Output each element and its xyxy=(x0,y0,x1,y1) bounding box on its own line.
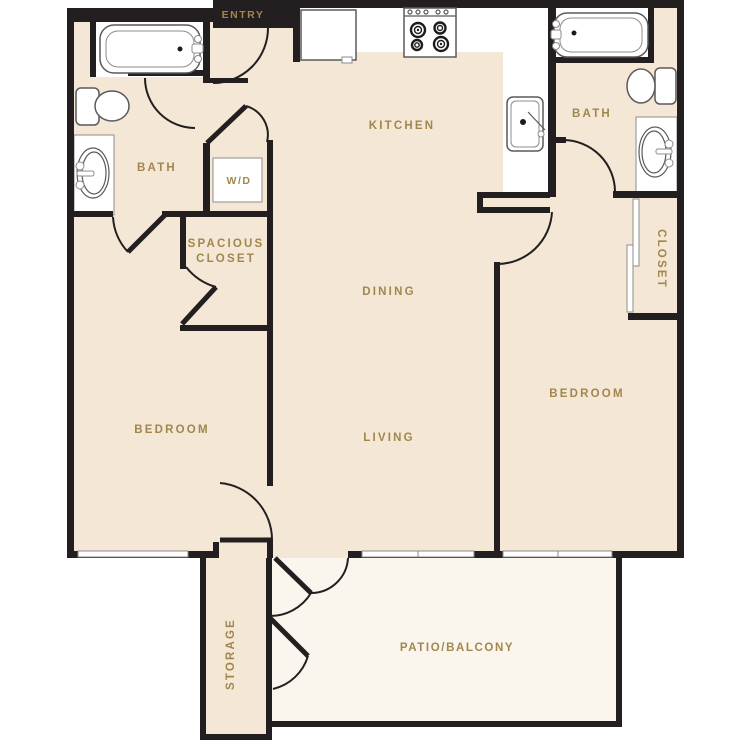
floor-plan: ENTRY KITCHEN BATH BATH W/D SPACIOUS CLO… xyxy=(0,0,750,750)
window xyxy=(78,551,188,557)
kitchen-sink-icon xyxy=(507,97,545,151)
fridge-icon xyxy=(301,10,356,60)
room-label-closet-right: CLOSET xyxy=(655,229,667,289)
fridge-handle xyxy=(342,57,352,63)
sliding-door-panel xyxy=(633,199,639,266)
room-label-bedroom-right: BEDROOM xyxy=(549,388,624,400)
bathtub-icon-left xyxy=(100,25,203,73)
room-label-bath-left: BATH xyxy=(137,162,177,174)
room-label-storage: STORAGE xyxy=(225,618,237,690)
room-label-bedroom-left: BEDROOM xyxy=(134,424,209,436)
room-label-spacious-closet-line2: CLOSET xyxy=(196,253,256,265)
room-label-spacious-closet-line1: SPACIOUS xyxy=(188,238,265,250)
room-label-dining: DINING xyxy=(362,286,415,298)
room-label-entry: ENTRY xyxy=(222,9,265,21)
bathtub-icon-right xyxy=(551,13,648,57)
room-label-patio: PATIO/BALCONY xyxy=(400,642,514,654)
room-label-living: LIVING xyxy=(363,432,415,444)
stove-icon xyxy=(404,8,456,57)
sliding-door-panel xyxy=(627,245,633,312)
room-label-kitchen: KITCHEN xyxy=(369,120,436,132)
room-label-wd: W/D xyxy=(227,175,252,187)
room-label-bath-right: BATH xyxy=(572,108,612,120)
unit-floor xyxy=(67,8,684,558)
floor-plan-canvas: ENTRY KITCHEN BATH BATH W/D SPACIOUS CLO… xyxy=(0,0,750,750)
